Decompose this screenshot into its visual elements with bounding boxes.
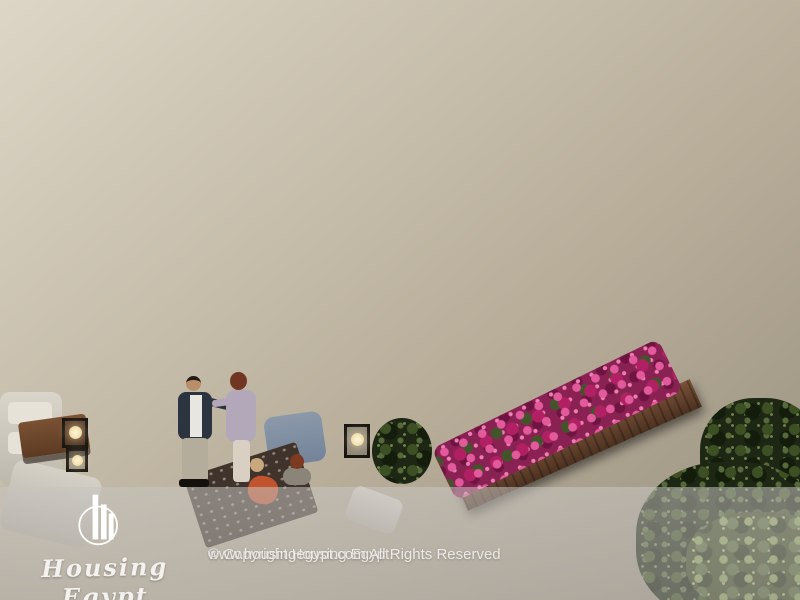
lantern-glow-orb <box>69 426 82 439</box>
deck-plant <box>372 418 432 484</box>
lantern-glow-orb <box>72 455 83 466</box>
standing-man-shoes <box>179 479 209 487</box>
seated-person-auburn-head <box>290 454 304 469</box>
watermark-overlay: Housing Egypt © Copyright Housing Egypt.… <box>0 487 800 600</box>
standing-woman-legs <box>233 440 250 482</box>
copyright-line2: www.housingegypt.com All Rights Reserved <box>208 545 501 564</box>
standing-woman-head <box>230 372 247 390</box>
standing-man-head <box>186 376 201 391</box>
architectural-render-scene: Housing Egypt © Copyright Housing Egypt.… <box>0 0 800 600</box>
lantern-glow-orb <box>351 433 364 446</box>
seated-person-shoulders <box>283 468 311 485</box>
housing-egypt-skyline-circle-logo <box>48 489 168 559</box>
floor-lantern-right <box>344 424 370 458</box>
floor-lantern <box>62 418 88 448</box>
seated-person-blond-head <box>250 458 264 472</box>
brand-script-text: Housing Egypt <box>0 551 210 600</box>
floor-lantern-small <box>66 448 88 472</box>
standing-man-pants <box>182 438 208 482</box>
standing-man-tshirt <box>190 395 202 437</box>
standing-woman-dress <box>226 390 256 442</box>
